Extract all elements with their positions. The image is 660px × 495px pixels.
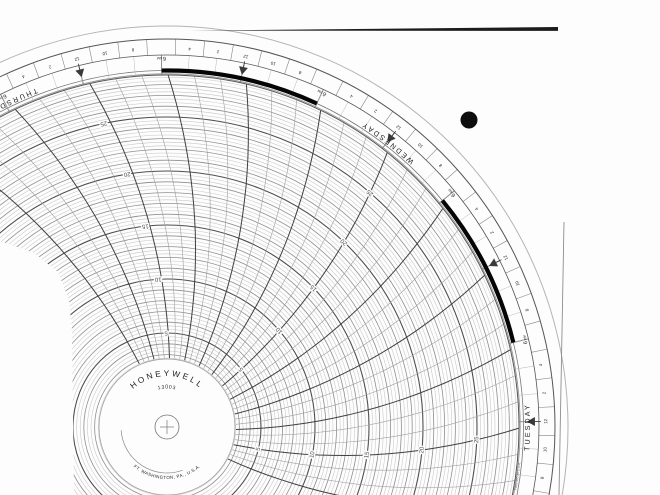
hour-tick [33, 63, 39, 78]
hour-number: 4 [21, 74, 26, 80]
hour-tick [258, 51, 262, 67]
hour-tick [445, 170, 457, 181]
hour-number: 2 [48, 64, 52, 70]
twelve-arrow [239, 66, 248, 75]
hour-tick [531, 349, 547, 352]
six-oclock-label: 6 PM [317, 87, 328, 96]
hour-number: 4 [188, 46, 191, 51]
hour-number: 8 [298, 70, 303, 76]
band-tick [106, 60, 109, 80]
hour-number: 4 [474, 206, 480, 211]
hour-number: 12 [543, 418, 548, 424]
scale-value-label: 10 [154, 276, 162, 282]
hour-number: 10 [270, 60, 277, 66]
hour-tick [203, 41, 205, 57]
hour-tick [405, 129, 415, 141]
black-dot [461, 112, 478, 129]
hour-tick [285, 59, 290, 74]
time-line-2h [219, 137, 366, 382]
hour-tick [89, 47, 92, 63]
scale-value-label: 25 [365, 187, 374, 196]
scale-value-label: 15 [141, 222, 149, 229]
hour-tick [538, 407, 554, 408]
band-circle [0, 55, 539, 495]
twelve-arrow-stem [78, 64, 79, 70]
hour-number: 10 [102, 51, 108, 57]
hour-tick [311, 69, 317, 84]
brand-model-label: 13003 [157, 385, 176, 392]
hour-tick [7, 74, 14, 89]
scale-value-label: 20 [123, 170, 131, 177]
hour-tick [534, 491, 550, 494]
scale-value-label: 15 [364, 451, 371, 459]
hour-tick [463, 192, 476, 202]
hub: HONEYWELL13003FT. WASHINGTON, PA., U.S.A… [99, 359, 235, 495]
hour-tick [336, 81, 343, 95]
scale-value-label: 5 [164, 329, 168, 335]
time-line-6h [212, 110, 321, 374]
time-lines [0, 55, 539, 495]
hour-number: 12 [395, 124, 402, 131]
hour-number: 10 [542, 446, 547, 452]
scale-value-label: 20 [419, 446, 426, 454]
hour-number: 4 [349, 93, 354, 99]
day-name-label: TUESDAY [522, 403, 532, 451]
hour-number: 12 [502, 254, 509, 261]
hour-tick [516, 293, 531, 299]
hour-tick [61, 54, 65, 69]
hour-tick [360, 95, 368, 109]
hour-number: 8 [524, 308, 530, 312]
hour-number: 2 [542, 391, 547, 394]
hour-number: 10 [514, 280, 521, 287]
twelve-arrow [75, 68, 84, 77]
scale-value-label: 25 [474, 436, 480, 444]
hour-number: 8 [438, 162, 444, 168]
hour-tick [426, 149, 437, 160]
hour-tick [147, 40, 148, 56]
circular-chart-paper: 6 PM42121086 AM42121086 PM42121086 AM421… [0, 0, 660, 495]
hour-tick [493, 241, 507, 249]
hour-number: 10 [417, 142, 424, 149]
hour-tick [525, 321, 540, 325]
chart-paper-product-photo: 6 PM42121086 AM42121086 PM42121086 AM421… [0, 0, 660, 495]
hour-number: 8 [540, 476, 545, 480]
band-tick [134, 56, 136, 76]
hour-number: 2 [216, 49, 220, 54]
hour-tick [536, 378, 552, 380]
hour-number: 2 [373, 108, 378, 114]
hour-number: 12 [242, 54, 248, 60]
band-tick [514, 366, 534, 369]
hour-tick [479, 216, 492, 225]
time-line-2h [228, 188, 426, 394]
hour-number: 12 [74, 56, 80, 62]
hour-tick [506, 267, 521, 274]
hour-tick [383, 111, 392, 124]
overlapping-sheet [0, 241, 74, 495]
time-line-2h [236, 299, 496, 419]
hour-number: 4 [538, 363, 543, 367]
hour-tick [231, 45, 234, 61]
time-line-2h [225, 170, 407, 391]
right-sheet-edge-line [559, 222, 564, 495]
top-sheet-edge-line [190, 27, 558, 31]
hour-number: 2 [489, 230, 495, 235]
band-tick [518, 394, 538, 396]
grid-rings [0, 71, 524, 495]
hour-tick [537, 463, 553, 465]
band-tick [421, 170, 435, 184]
hour-number: 8 [131, 47, 134, 52]
hour-tick [118, 42, 120, 58]
